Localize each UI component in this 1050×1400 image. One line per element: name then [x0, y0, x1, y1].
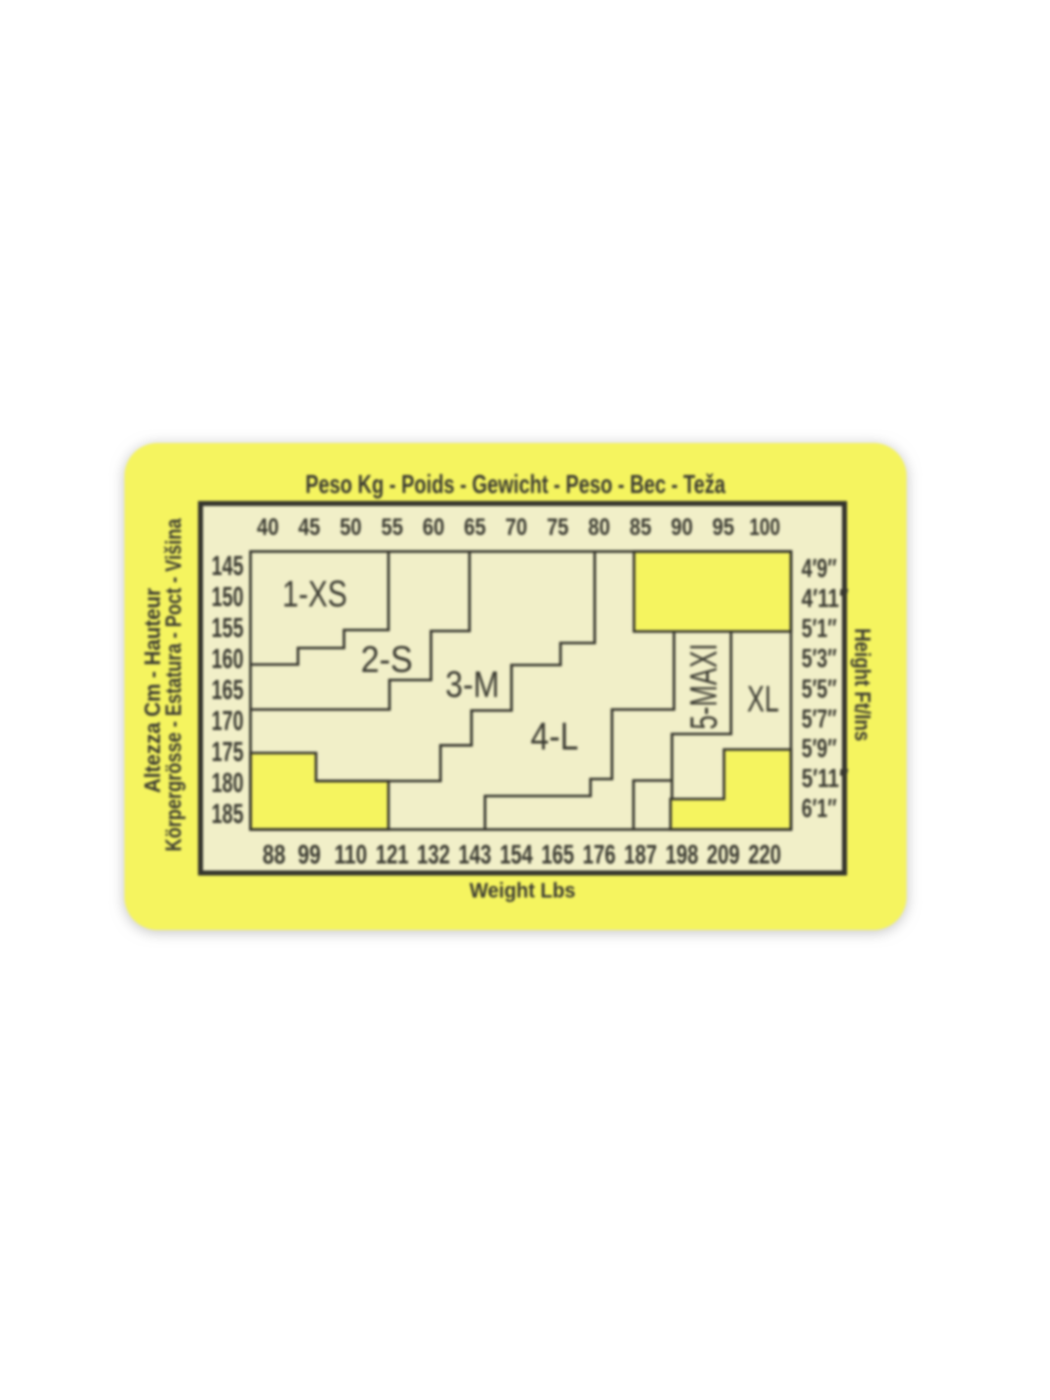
- svg-text:65: 65: [464, 514, 486, 541]
- svg-text:220: 220: [748, 840, 781, 870]
- svg-text:40: 40: [257, 514, 279, 541]
- svg-text:5′3″: 5′3″: [802, 643, 837, 673]
- svg-text:5′1″: 5′1″: [802, 613, 837, 643]
- svg-text:209: 209: [707, 840, 740, 870]
- svg-text:45: 45: [298, 514, 320, 541]
- svg-text:85: 85: [630, 514, 652, 541]
- svg-text:121: 121: [376, 840, 409, 870]
- svg-text:6′1″: 6′1″: [802, 793, 837, 823]
- svg-text:5′7″: 5′7″: [802, 704, 837, 734]
- svg-text:55: 55: [381, 514, 403, 541]
- svg-text:180: 180: [212, 767, 244, 798]
- svg-text:170: 170: [212, 705, 244, 736]
- svg-text:165: 165: [212, 674, 244, 705]
- svg-text:198: 198: [665, 840, 698, 870]
- svg-text:143: 143: [458, 840, 491, 870]
- svg-text:4′11″: 4′11″: [802, 584, 849, 613]
- svg-text:88: 88: [263, 840, 286, 870]
- svg-text:90: 90: [671, 514, 693, 541]
- svg-text:Weight Lbs: Weight Lbs: [470, 880, 576, 903]
- svg-text:2-S: 2-S: [361, 639, 413, 680]
- svg-text:4-L: 4-L: [531, 716, 579, 759]
- svg-text:99: 99: [298, 840, 321, 870]
- svg-text:5′11″: 5′11″: [802, 764, 849, 793]
- svg-text:150: 150: [212, 581, 244, 612]
- svg-text:4′9″: 4′9″: [802, 553, 837, 583]
- svg-text:165: 165: [541, 840, 574, 870]
- svg-text:60: 60: [423, 514, 445, 541]
- svg-text:5′9″: 5′9″: [802, 733, 837, 763]
- svg-text:1-XS: 1-XS: [282, 574, 347, 615]
- svg-text:132: 132: [417, 840, 450, 870]
- svg-text:75: 75: [547, 514, 569, 541]
- svg-text:155: 155: [212, 612, 244, 643]
- svg-text:110: 110: [334, 840, 367, 870]
- svg-text:Peso Kg - Poids - Gewicht - Pe: Peso Kg - Poids - Gewicht - Peso - Bec -…: [305, 469, 725, 499]
- svg-text:XL: XL: [747, 679, 779, 720]
- svg-text:154: 154: [500, 840, 533, 870]
- svg-text:95: 95: [712, 514, 734, 541]
- svg-text:160: 160: [212, 643, 244, 674]
- svg-text:5-MAXI: 5-MAXI: [684, 644, 726, 730]
- svg-text:3-M: 3-M: [445, 664, 499, 705]
- svg-text:Körpergrösse - Estatura - Poct: Körpergrösse - Estatura - Poct - Višina: [161, 518, 186, 852]
- svg-text:185: 185: [212, 798, 244, 829]
- svg-text:145: 145: [212, 550, 244, 581]
- svg-text:100: 100: [749, 514, 780, 541]
- svg-text:175: 175: [212, 736, 244, 767]
- svg-text:80: 80: [588, 514, 610, 541]
- svg-text:176: 176: [583, 840, 616, 870]
- svg-text:70: 70: [505, 514, 527, 541]
- svg-text:187: 187: [624, 840, 657, 870]
- svg-text:5′5″: 5′5″: [802, 674, 837, 704]
- svg-text:50: 50: [340, 514, 362, 541]
- svg-text:Height Ft/Ins: Height Ft/Ins: [850, 628, 875, 741]
